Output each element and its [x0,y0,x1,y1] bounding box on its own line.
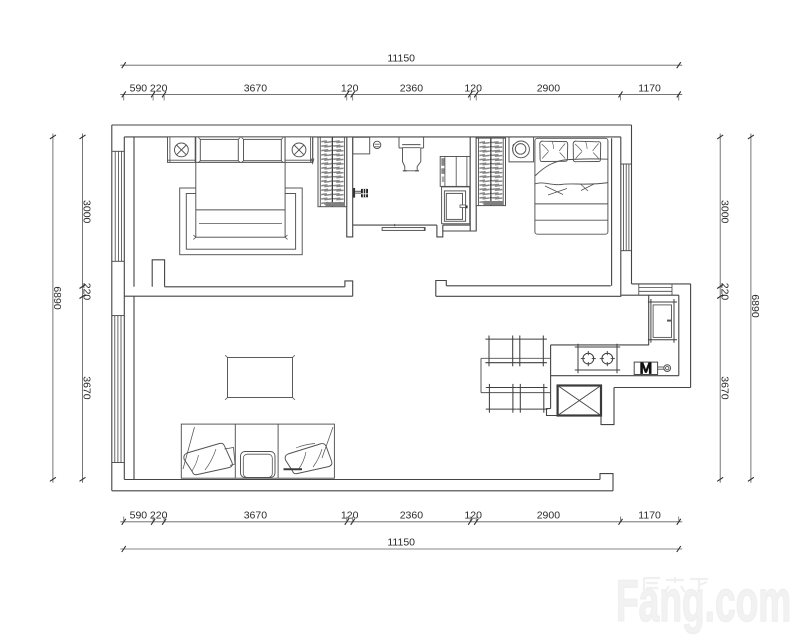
svg-text:2900: 2900 [537,83,561,95]
svg-text:220: 220 [150,83,168,95]
svg-text:6890: 6890 [749,294,761,318]
svg-text:11150: 11150 [387,537,415,549]
svg-text:3000: 3000 [81,200,93,224]
svg-text:3670: 3670 [81,376,93,400]
svg-text:120: 120 [341,509,359,521]
svg-text:1170: 1170 [638,83,661,95]
svg-text:590: 590 [130,83,148,95]
svg-text:11150: 11150 [387,52,415,64]
svg-text:1170: 1170 [638,509,661,521]
svg-text:220: 220 [718,283,730,301]
svg-text:3000: 3000 [718,200,730,224]
svg-text:2360: 2360 [400,83,424,95]
svg-text:590: 590 [130,509,148,521]
svg-text:2900: 2900 [537,509,561,521]
svg-text:120: 120 [464,509,482,521]
svg-text:2360: 2360 [400,509,424,521]
svg-text:3670: 3670 [244,83,268,95]
svg-text:6890: 6890 [51,286,63,310]
svg-text:120: 120 [464,83,482,95]
svg-text:220: 220 [81,283,93,301]
svg-text:220: 220 [150,509,168,521]
svg-text:3670: 3670 [244,509,268,521]
svg-text:3670: 3670 [718,376,730,400]
svg-text:120: 120 [341,83,359,95]
